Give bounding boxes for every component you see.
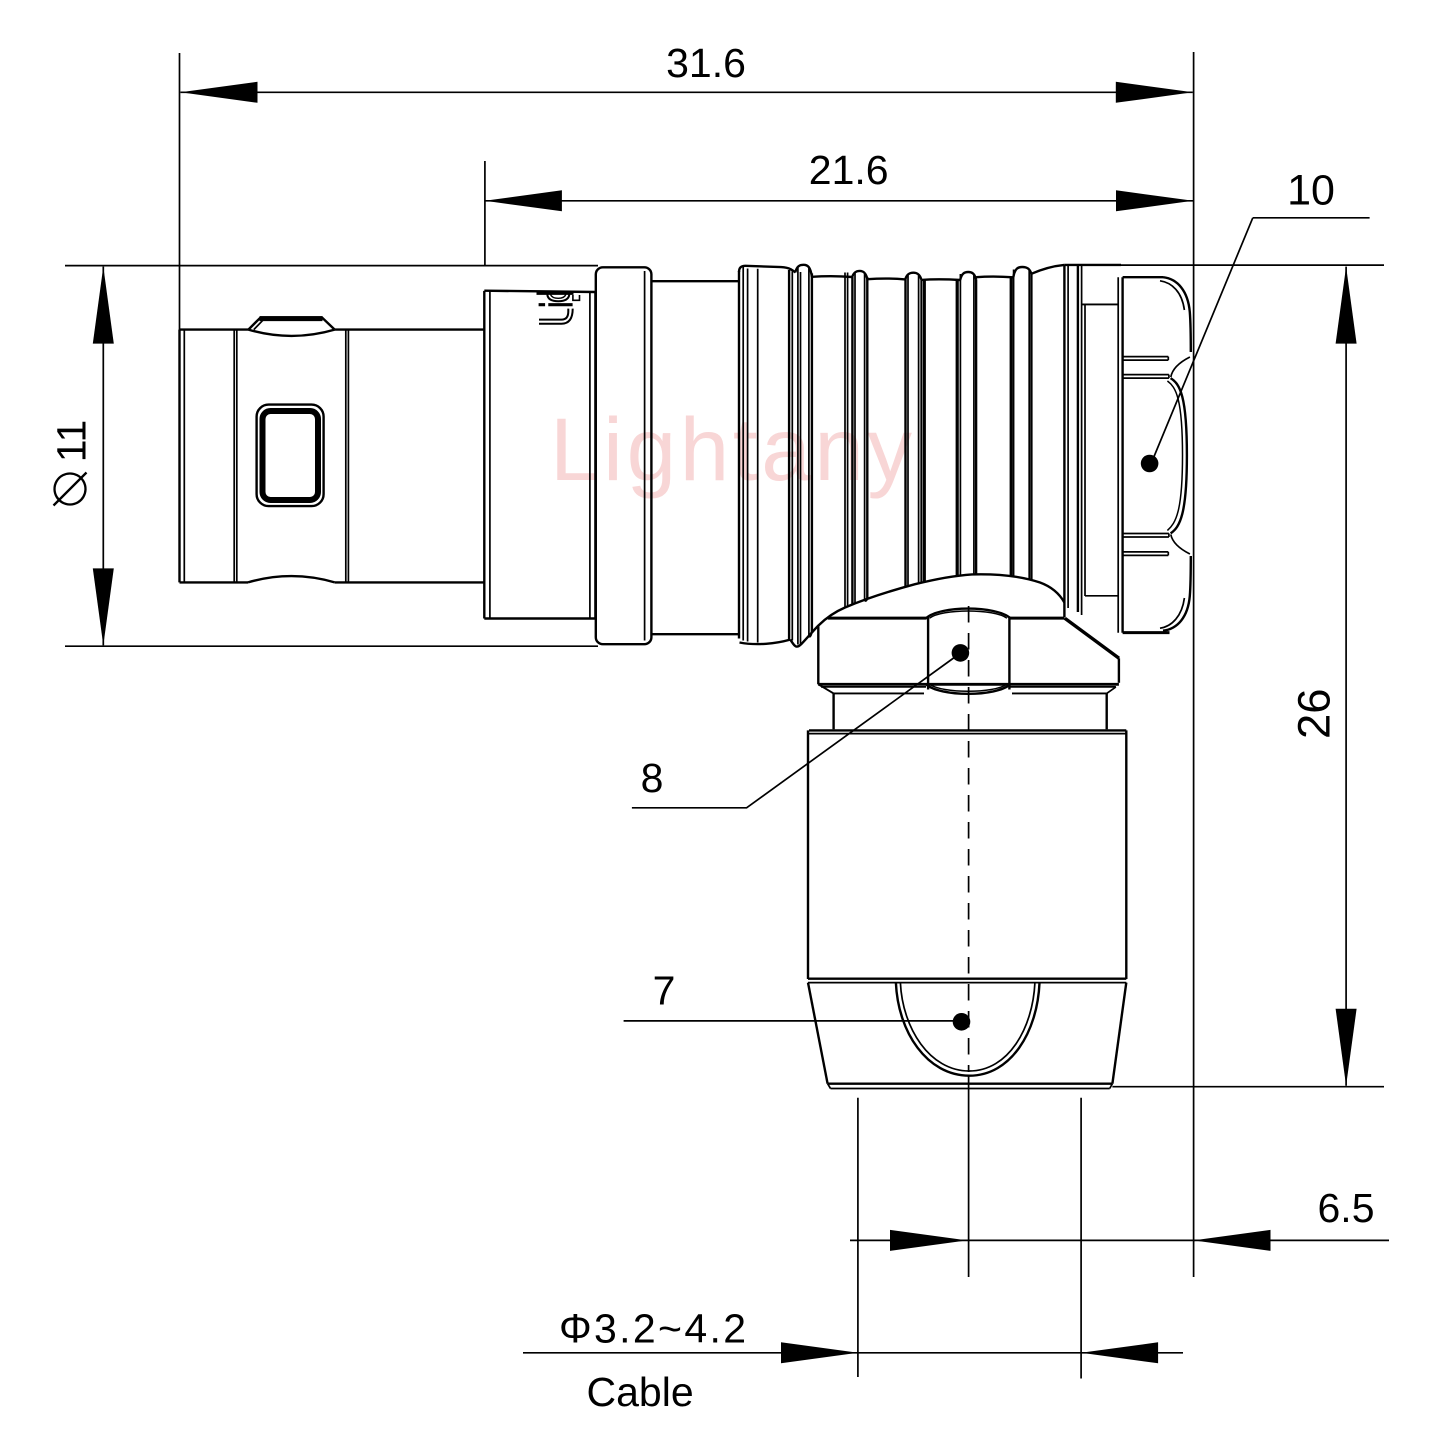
svg-text:26: 26 [1289, 688, 1340, 739]
svg-text:10: 10 [1287, 167, 1335, 215]
svg-text:11: 11 [49, 420, 95, 463]
svg-text:7: 7 [653, 968, 676, 1014]
svg-text:Φ3.2~4.2: Φ3.2~4.2 [559, 1306, 746, 1352]
svg-text:Cable: Cable [587, 1369, 694, 1415]
svg-text:6.5: 6.5 [1318, 1185, 1375, 1231]
svg-text:31.6: 31.6 [666, 40, 746, 86]
svg-text:21.6: 21.6 [809, 147, 889, 193]
svg-text:8: 8 [641, 755, 664, 801]
